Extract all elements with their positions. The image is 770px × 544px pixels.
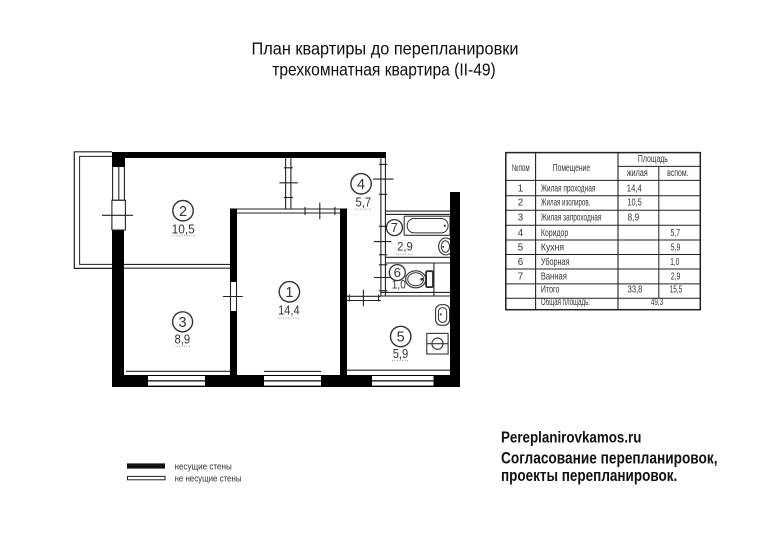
svg-text:5,9: 5,9 [393, 347, 409, 361]
svg-text:2,9: 2,9 [397, 240, 413, 254]
svg-text:5: 5 [397, 330, 405, 346]
svg-text:8,9: 8,9 [627, 213, 639, 224]
svg-text:1,0: 1,0 [670, 257, 679, 268]
svg-text:1,0: 1,0 [392, 278, 406, 292]
svg-text:15,5: 15,5 [670, 284, 683, 295]
svg-text:Площадь: Площадь [638, 154, 668, 165]
svg-text:вспом.: вспом. [667, 168, 689, 179]
svg-text:4: 4 [518, 228, 524, 239]
svg-text:1: 1 [518, 183, 523, 194]
svg-text:5,7: 5,7 [356, 196, 372, 210]
svg-text:2: 2 [518, 198, 523, 209]
svg-text:Согласование перепланировок,: Согласование перепланировок, [501, 449, 718, 467]
svg-text:3: 3 [518, 213, 524, 224]
svg-text:Жилая изолиров.: Жилая изолиров. [541, 198, 590, 209]
svg-text:14,4: 14,4 [278, 304, 300, 318]
svg-text:6: 6 [518, 257, 524, 268]
svg-text:8,9: 8,9 [174, 333, 190, 347]
svg-text:49,3: 49,3 [651, 297, 664, 308]
svg-text:Итого: Итого [541, 284, 560, 295]
svg-text:Жилая запроходная: Жилая запроходная [541, 213, 602, 224]
svg-text:33,8: 33,8 [628, 284, 643, 295]
svg-text:5: 5 [518, 242, 524, 253]
svg-text:10,5: 10,5 [172, 222, 195, 236]
svg-text:10,5: 10,5 [627, 198, 642, 209]
svg-text:5,9: 5,9 [671, 242, 681, 253]
svg-text:Коридор: Коридор [541, 228, 569, 239]
svg-text:Помещение: Помещение [553, 163, 591, 174]
svg-text:5,7: 5,7 [671, 228, 681, 239]
svg-text:3: 3 [179, 315, 187, 331]
svg-text:проекты перепланировок.: проекты перепланировок. [501, 467, 677, 485]
svg-text:14,4: 14,4 [627, 183, 642, 194]
svg-text:не несущие стены: не несущие стены [175, 474, 242, 485]
svg-text:1: 1 [285, 285, 293, 301]
svg-text:Кухня: Кухня [541, 242, 564, 253]
svg-text:7: 7 [518, 272, 523, 283]
svg-text:Жилая проходная: Жилая проходная [541, 183, 596, 194]
svg-text:№пом: №пом [512, 163, 530, 174]
svg-text:Pereplanirovkamos.ru: Pereplanirovkamos.ru [501, 429, 641, 446]
svg-text:7: 7 [391, 220, 398, 235]
svg-text:жилая: жилая [627, 168, 648, 179]
svg-text:Общая площадь:: Общая площадь: [541, 297, 590, 308]
svg-text:Ванная: Ванная [541, 272, 567, 283]
svg-text:План квартиры до перепланировк: План квартиры до перепланировки [252, 38, 519, 58]
svg-text:несущие стены: несущие стены [175, 461, 232, 472]
svg-text:4: 4 [357, 177, 365, 193]
svg-text:2,9: 2,9 [671, 272, 681, 283]
svg-text:Уборная: Уборная [541, 257, 570, 268]
svg-text:трехкомнатная квартира (II-49): трехкомнатная квартира (II-49) [272, 59, 496, 79]
svg-text:2: 2 [179, 204, 187, 220]
